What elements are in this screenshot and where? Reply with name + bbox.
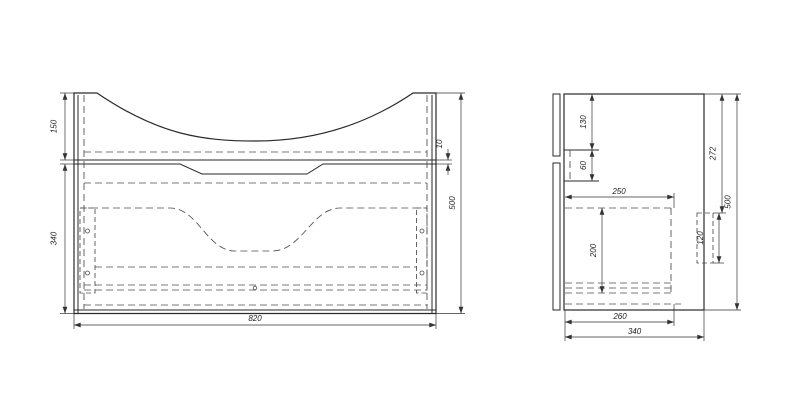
dim-front-seam-gap: 10	[435, 139, 444, 148]
hidden-drawer-box-top-with-bowl-dip	[80, 208, 427, 251]
screw-hole-center	[253, 286, 257, 290]
dim-side-overall-depth: 340	[628, 327, 642, 336]
left-slide-bracket	[80, 208, 95, 293]
front-view: 150 340 10 500 820	[50, 93, 466, 329]
side-front-panel-upper	[553, 94, 560, 156]
dim-front-overall-height: 500	[448, 196, 457, 210]
screw-hole-right-top	[420, 229, 424, 233]
dim-side-drawer-height: 200	[589, 243, 598, 258]
dim-side-inner-depth: 260	[612, 312, 627, 321]
dim-front-overall-width: 820	[248, 314, 262, 323]
screw-hole-right-bottom	[420, 271, 424, 275]
dim-side-counter-thickness: 60	[579, 161, 588, 170]
side-front-panel-lower	[553, 163, 560, 310]
dim-side-drawer-depth: 250	[611, 187, 626, 196]
dim-side-bracket-height: 120	[696, 231, 705, 245]
dim-side-overall-height: 500	[724, 195, 733, 209]
screw-hole-left-top	[86, 229, 90, 233]
dim-side-upper-section: 272	[709, 146, 718, 161]
screw-hole-left-bottom	[86, 271, 90, 275]
front-dimensions: 150 340 10 500 820	[50, 93, 466, 329]
drawer-front-top-edge-with-recess	[74, 164, 436, 174]
cad-drawing-sheet: 150 340 10 500 820	[0, 0, 800, 406]
dim-side-top-to-counter: 130	[579, 115, 588, 129]
dim-front-top-height: 150	[50, 119, 59, 133]
front-outline	[74, 93, 436, 314]
dim-front-lower-height: 340	[50, 231, 59, 245]
vanity-cabinet-drawing: 150 340 10 500 820	[0, 0, 800, 406]
side-view: 130 60 250 200 120 272 500	[553, 94, 741, 341]
right-slide-bracket	[417, 208, 428, 293]
